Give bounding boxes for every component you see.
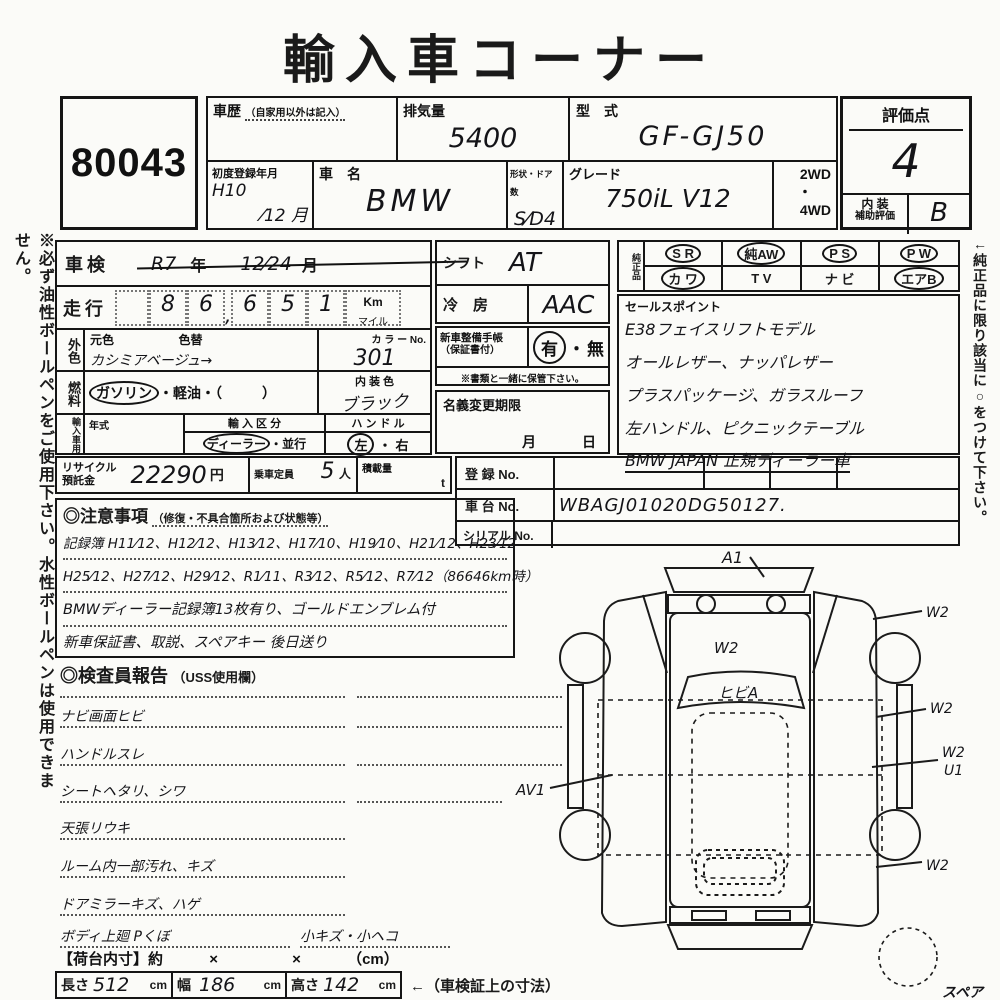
- width-label: 幅: [177, 975, 191, 995]
- registration-no-sub: [703, 458, 770, 488]
- handle-left-option: 左: [347, 433, 374, 456]
- fuel-side-label: 燃料: [57, 372, 85, 413]
- cowl-band-shape: [668, 595, 810, 613]
- report-line: 天張リウキ: [60, 814, 345, 840]
- exterior-color-row: 外色 元色 色替 カシミアベージュ→ カ ラ ー No. 301: [55, 328, 432, 372]
- left-a-pillar-line: [643, 595, 667, 673]
- windshield-annotation: ヒビA: [718, 684, 758, 702]
- interior-score-label: 内 装 補助評価: [843, 195, 909, 234]
- height-label: 高さ: [291, 975, 319, 995]
- car-name-cell: 車 名 BMW: [312, 160, 508, 230]
- service-book-separator: ・: [568, 335, 585, 360]
- rear-window-dashed: [696, 850, 784, 895]
- report-guide-line: [357, 787, 502, 803]
- length-value: 512: [93, 974, 129, 996]
- registration-no-sub: [553, 458, 703, 488]
- shift-cell: シフト AT: [435, 240, 610, 286]
- lot-number-box: 80043: [60, 96, 198, 230]
- width-unit: cm: [264, 978, 281, 992]
- mileage-digit: 5: [269, 290, 307, 326]
- right-pointer-line-2: [876, 709, 926, 717]
- report-line: ルーム内一部汚れ、キズ: [60, 852, 345, 878]
- mileage-digit: 6: [231, 290, 269, 326]
- shift-label: シフト: [443, 253, 485, 273]
- sales-point-line: プラスパッケージ、ガラスルーフ: [625, 382, 952, 406]
- genuine-parts-side-label: 純正品: [619, 242, 645, 290]
- name-change-cell: 名義変更期限 月 日: [435, 390, 610, 454]
- chassis-no-value: WBAGJ01020DG50127.: [555, 490, 958, 520]
- right-door-panel: [814, 592, 878, 926]
- load-unit: t: [441, 476, 445, 490]
- front-bumper-shape: [665, 568, 813, 592]
- registration-no-sub: [769, 458, 836, 488]
- shaken-era: R7: [151, 253, 176, 275]
- fuel-diesel-option: 軽油: [173, 383, 201, 403]
- height-unit: cm: [379, 978, 396, 992]
- score-box: 評価点 4 内 装 補助評価 B: [840, 96, 972, 230]
- fuel-row: 燃料 ガソリン ・ 軽油 ・（ ） 内 装 色 ブラック: [55, 370, 432, 415]
- handle-separator: ・: [378, 435, 391, 454]
- right-annotation-1: W2: [926, 605, 949, 621]
- genuine-navi: ナ ビ: [825, 269, 855, 288]
- handle-label: ハ ン ド ル: [326, 415, 430, 433]
- history-cell: 車歴 （自家用以外は記入）: [206, 96, 398, 162]
- width-value: 186: [199, 974, 235, 996]
- sales-points-label: セールスポイント: [625, 298, 952, 315]
- lot-number: 80043: [71, 141, 187, 186]
- drive-2wd: 2WD: [779, 166, 831, 182]
- ac-cell: 冷 房 AAC: [435, 284, 610, 324]
- mileage-digit: 8: [149, 290, 187, 326]
- drive-type-cell: 2WD ・ 4WD: [772, 160, 838, 230]
- model-code-cell: 型 式 GF-GJ50: [568, 96, 838, 162]
- page-title: 輸入車コーナー: [0, 18, 1000, 93]
- left-front-wheel: [560, 633, 610, 683]
- right-annotation-2: W2: [930, 701, 953, 717]
- grade-label: グレード: [569, 167, 621, 182]
- sales-point-line: オールレザー、ナッパレザー: [625, 349, 952, 373]
- left-sill-shape: [568, 685, 583, 808]
- genuine-airbag: エアB: [894, 267, 943, 290]
- recycle-unit: 円: [210, 465, 224, 485]
- sales-points-box: セールスポイント E38フェイスリフトモデル オールレザー、ナッパレザー プラス…: [617, 294, 960, 455]
- fuel-paren-open: ・（: [201, 383, 222, 403]
- import-row: 輸入車用 年式 輸 入 区 分 ディーラー ・ 並行 ハ ン ド ル 左 ・ 右: [55, 413, 432, 455]
- first-registration-month: ⁄12 月: [212, 201, 308, 226]
- fuel-paren-close: ）: [262, 383, 276, 403]
- shaken-year-unit: 年: [190, 252, 206, 276]
- width-cell: 幅 186 cm: [171, 971, 287, 999]
- report-line: ハンドルスレ: [60, 740, 345, 766]
- score-label: 評価点: [849, 99, 963, 131]
- ac-label: 冷 房: [437, 286, 529, 322]
- name-change-day: 日: [582, 432, 596, 452]
- first-registration-cell: 初度登録年月 H10 ⁄12 月: [206, 160, 314, 230]
- capacity-cell: 乗車定員 5 人: [248, 456, 358, 494]
- license-cutout-left: [692, 911, 726, 920]
- spare-tire-circle: [879, 928, 937, 986]
- license-cutout-right: [756, 911, 790, 920]
- rear-window-inner-dashed: [704, 858, 776, 884]
- right-annotation-4: W2: [926, 858, 949, 874]
- recycle-value: 22290: [130, 461, 206, 489]
- report-line-right: 小キズ・小ヘコ: [300, 922, 450, 948]
- load-label: 積載量: [362, 464, 392, 475]
- cargo-times: ×: [209, 951, 218, 968]
- registration-no-label: 登 録 No.: [457, 458, 553, 488]
- shaken-row: 車検 R7 年 12⁄24 月: [55, 240, 432, 287]
- hood-annotation: W2: [714, 639, 738, 657]
- rear-bumper-shape: [668, 925, 812, 949]
- headlight-washer-right: [767, 595, 785, 613]
- caution-line: BMWディーラー記録簿13枚有り、ゴールドエンブレム付: [63, 593, 507, 627]
- caution-line: 新車保証書、取説、スペアキー 後日送り: [63, 627, 507, 657]
- history-label: 車歴: [213, 103, 241, 119]
- mileage-row: 走行 8 6 , 6 5 1 Km マイル: [55, 285, 432, 330]
- interior-dashed-region: [598, 700, 882, 855]
- model-code-label: 型 式: [576, 103, 618, 119]
- cargo-label: 【荷台内寸】約: [58, 951, 163, 968]
- headlight-washer-left: [697, 595, 715, 613]
- recycle-cell: リサイクル預託金 22290 円: [55, 456, 250, 494]
- left-door-panel: [602, 592, 666, 926]
- displacement-value: 5400: [403, 123, 563, 154]
- interior-score-value: B: [909, 195, 969, 234]
- left-door-annotation: AV1: [515, 781, 545, 799]
- shift-value: AT: [509, 248, 541, 278]
- name-change-month: 月: [522, 432, 536, 452]
- cargo-dims-line: 【荷台内寸】約 × × （cm）: [58, 948, 399, 969]
- genuine-pw: P W: [900, 244, 938, 263]
- genuine-parts-box: 純正品 S R 純AW P S P W カ ワ T V ナ ビ エアB: [617, 240, 960, 292]
- recycle-label: リサイクル預託金: [62, 462, 116, 488]
- fuel-gasoline-option: ガソリン: [89, 381, 159, 405]
- cargo-times: ×: [292, 951, 301, 968]
- capacity-unit: 人: [339, 467, 351, 481]
- name-change-label: 名義変更期限: [443, 395, 602, 414]
- body-doors-cell: 形状・ドア数 S⁄D4: [506, 160, 564, 230]
- cautions-subtitle: （修復・不具合箇所および状態等）: [152, 513, 328, 527]
- drive-dot: ・: [779, 182, 831, 202]
- service-book-label: 新車整備手帳 （保証書付）: [437, 328, 529, 366]
- capacity-label: 乗車定員: [254, 470, 294, 481]
- first-registration-era: H10: [212, 182, 308, 201]
- mileage-digit: 1: [307, 290, 345, 326]
- caution-line: H25⁄12、H27⁄12、H29⁄12、R1⁄11、R3⁄12、R5⁄12、R…: [63, 560, 507, 593]
- service-book-note: ※書類と一緒に保管下さい。: [437, 366, 608, 388]
- car-body-outline: [670, 613, 810, 907]
- base-color-label: 元色: [90, 333, 114, 347]
- genuine-ps: P S: [822, 244, 857, 263]
- body-doors-label: 形状・ドア数: [510, 169, 553, 197]
- ac-value: AAC: [529, 286, 608, 322]
- service-book-no-option: 無: [587, 335, 604, 360]
- load-cell: 積載量 t: [356, 456, 452, 494]
- genuine-aw: 純AW: [737, 242, 785, 265]
- right-front-wheel: [870, 633, 920, 683]
- route-parallel-option: 並行: [282, 435, 306, 452]
- left-margin-note: ※必ず油性ボールペンをご使用下さい。水性ボールペンは使用できません。: [8, 232, 56, 792]
- cabin-dashed-outline: [692, 713, 788, 878]
- mileage-box-empty: [115, 290, 149, 326]
- drive-4wd: 4WD: [779, 202, 831, 218]
- import-route-label: 輸 入 区 分: [185, 415, 324, 433]
- right-a-pillar-line: [813, 595, 837, 673]
- length-label: 長さ: [61, 975, 89, 995]
- right-pointer-line-1: [873, 611, 922, 619]
- genuine-sr: S R: [665, 244, 701, 263]
- registration-no-value: [836, 458, 958, 488]
- report-guide-line: [60, 682, 345, 698]
- report-line: ナビ画面ヒビ: [60, 702, 345, 728]
- right-pointer-line-4: [876, 862, 922, 867]
- mileage-label: 走行: [63, 295, 107, 321]
- car-condition-diagram: A1 W2 ヒビA AV1 W2 W2 W2 U1 W2 スペア: [510, 545, 990, 1000]
- cautions-title: ◎注意事項: [63, 507, 148, 526]
- mileage-unit: Km マイル: [345, 290, 401, 326]
- import-side-label: 輸入車用: [57, 415, 85, 453]
- front-annotation: A1: [721, 548, 743, 567]
- right-annotation-3a: W2: [942, 745, 965, 761]
- grade-value: 750iL V12: [569, 184, 767, 213]
- year-type-label: 年式: [89, 421, 109, 432]
- cargo-unit: （cm）: [347, 951, 399, 968]
- exterior-color-value: カシミアベージュ→: [90, 350, 312, 370]
- height-cell: 高さ 142 cm: [285, 971, 402, 999]
- registration-table: 登 録 No. 車 台 No. WBAGJ01020DG50127. シリアル …: [455, 456, 960, 546]
- mileage-digit: 6: [187, 290, 225, 326]
- route-dealer-option: ディーラー: [203, 433, 270, 454]
- repaint-label: 色替: [178, 333, 202, 347]
- sales-point-line: E38フェイスリフトモデル: [625, 316, 952, 340]
- shaken-label: 車検: [65, 251, 109, 277]
- model-code-value: GF-GJ50: [576, 121, 830, 152]
- color-no-label: カ ラ ー No.: [323, 331, 426, 346]
- body-doors-value: S⁄D4: [510, 208, 560, 230]
- exterior-side-label: 外色: [57, 330, 85, 370]
- route-separator: ・: [270, 435, 282, 452]
- auction-sheet: 輸入車コーナー ※必ず油性ボールペンをご使用下さい。水性ボールペンは使用できませ…: [0, 0, 1000, 1000]
- genuine-tv: T V: [751, 271, 771, 286]
- sales-point-line: 左ハンドル、ピクニックテーブル: [625, 415, 952, 439]
- color-no-value: 301: [323, 346, 426, 371]
- car-name-label: 車 名: [319, 166, 361, 182]
- car-name-value: BMW: [319, 184, 501, 219]
- right-sill-shape: [897, 685, 912, 808]
- grade-cell: グレード 750iL V12: [562, 160, 774, 230]
- service-book-cell: 新車整備手帳 （保証書付） 有 ・ 無 ※書類と一緒に保管下さい。: [435, 326, 610, 386]
- genuine-leather: カ ワ: [661, 267, 705, 290]
- length-cell: 長さ 512 cm: [55, 971, 173, 999]
- caution-line: 記録簿 H11⁄12、H12⁄12、H13⁄12、H17⁄10、H19⁄10、H…: [63, 527, 507, 560]
- report-line: ドアミラーキズ、ハゲ: [60, 890, 345, 916]
- right-annotation-3b: U1: [944, 763, 963, 779]
- handle-right-option: 右: [396, 435, 409, 454]
- cautions-box: ◎注意事項 （修復・不具合箇所および状態等） 記録簿 H11⁄12、H12⁄12…: [55, 498, 515, 658]
- first-registration-label: 初度登録年月: [212, 168, 278, 180]
- history-sublabel: （自家用以外は記入）: [245, 108, 345, 121]
- score-value: 4: [843, 131, 969, 193]
- report-line: シートヘタリ、シワ: [60, 777, 345, 803]
- height-value: 142: [323, 974, 359, 996]
- report-line: ボディ上廻 Pくぼ: [60, 922, 290, 948]
- displacement-label: 排気量: [403, 103, 445, 119]
- displacement-cell: 排気量 5400: [396, 96, 570, 162]
- length-unit: cm: [150, 978, 167, 992]
- capacity-value: 5: [320, 459, 334, 484]
- fuel-separator: ・: [159, 383, 173, 403]
- service-book-yes-option: 有: [533, 331, 566, 364]
- right-pointer-line-3: [872, 760, 938, 767]
- spare-label: スペア: [942, 985, 985, 1000]
